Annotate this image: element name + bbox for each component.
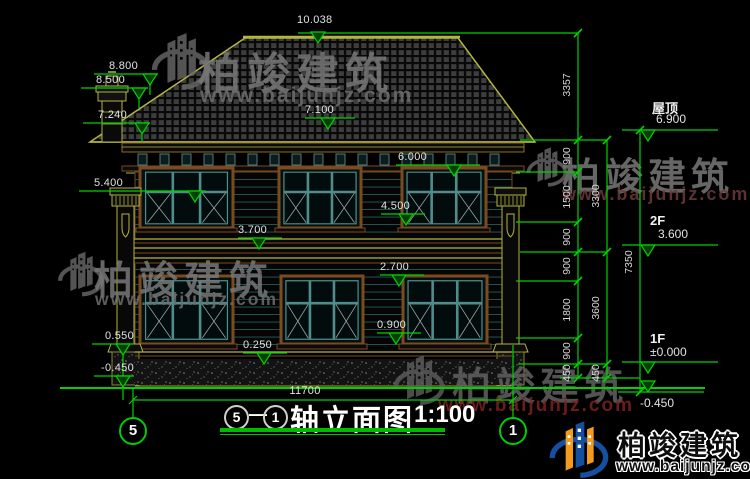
title-axis-end: 1: [263, 405, 288, 430]
grid-bubble-1: 1: [499, 417, 527, 445]
dim-v: 1800: [561, 298, 573, 321]
dim-left: 5.400: [77, 177, 123, 189]
dim-left: 8.500: [79, 74, 125, 86]
level-ground-value: -0.450: [640, 396, 674, 410]
dim-mid: 4.500: [381, 200, 410, 212]
dim-mid: 0.900: [377, 319, 406, 331]
dim-v: 900: [561, 257, 573, 275]
level-1f-value: ±0.000: [650, 345, 687, 359]
brand-url: www.baijunjz.com: [616, 458, 750, 476]
dim-left: 0.550: [90, 330, 134, 342]
dim-v: 1500: [561, 185, 573, 208]
dim-left: 7.240: [81, 109, 127, 121]
title-underline: [220, 428, 445, 432]
dim-ridge: 10.038: [297, 14, 332, 26]
dim-v: 7350: [623, 250, 635, 273]
level-2f-label: 2F: [650, 213, 665, 228]
dim-v: 3600: [590, 296, 602, 319]
dim-left: 8.800: [92, 60, 138, 72]
dim-mid: 7.100: [305, 104, 334, 116]
cad-elevation-screenshot: 柏竣建筑 www.baijunjz.com 柏竣建筑 www.baijunjz.…: [0, 0, 750, 479]
dim-v: 450: [561, 364, 573, 382]
dim-total-width: 11700: [275, 385, 335, 397]
title-axis-start: 5: [224, 405, 249, 430]
dim-v: 900: [561, 342, 573, 360]
dim-mid: 2.700: [380, 261, 409, 273]
drawing-title: 轴立面图: [290, 397, 414, 439]
grid-bubble-5: 5: [119, 417, 147, 445]
dim-v: 3357: [561, 73, 573, 96]
level-2f-value: 3.600: [658, 227, 688, 241]
dim-v: 3300: [590, 184, 602, 207]
level-1f-label: 1F: [650, 331, 665, 346]
title-underline-2: [220, 434, 445, 435]
dim-mid: 0.250: [243, 339, 272, 351]
dim-mid: 3.700: [238, 224, 267, 236]
dim-mid: 6.000: [398, 151, 427, 163]
dim-left: -0.450: [86, 362, 134, 374]
dim-v: 900: [561, 228, 573, 246]
dim-v: 450: [590, 364, 602, 382]
level-roof-value: 6.900: [656, 112, 686, 126]
baijun-logo-color-icon: [543, 418, 615, 478]
drawing-scale: 1:100: [414, 401, 475, 429]
dim-v: 900: [561, 147, 573, 165]
